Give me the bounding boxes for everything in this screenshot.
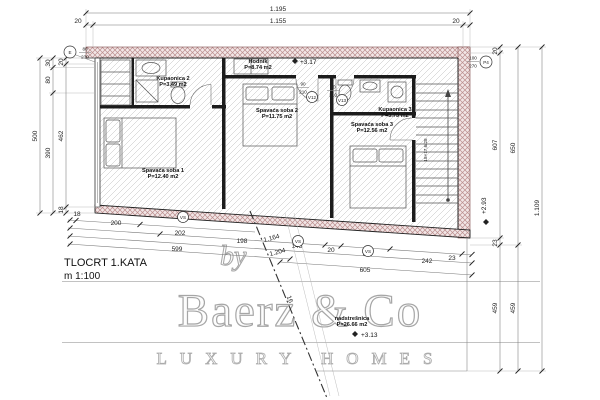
window-tag-top: 100 (469, 56, 477, 61)
dim-label: 1.164 (263, 233, 281, 244)
dim-label: 20 (74, 18, 82, 25)
room-area-kupaonica2: P=3.49 m2 (159, 82, 187, 88)
dim-label: 20 (327, 247, 335, 254)
dim-label: 1.155 (270, 18, 287, 25)
dim-label: 459 (492, 302, 499, 313)
dim-label: 1.109 (534, 199, 541, 216)
room-area-hodnik: P=8.74 m2 (244, 65, 272, 71)
dimension-left: 500 30 80 390 20 462 18 E 80 230 (32, 46, 100, 216)
terrace: nadstrešnica P=26.66 m2 +3.13 (316, 238, 467, 371)
room-area-spavaca2: P=11.75 m2 (262, 114, 292, 120)
door-tag-top: 90 (300, 82, 306, 87)
door-tag-bottom: 230 (81, 55, 89, 60)
door-tag-top: 80 (82, 47, 88, 52)
dimension-top: 1.195 20 1.155 20 (74, 6, 472, 47)
dim-label: 80 (45, 76, 52, 84)
door-tag-top: 90 (330, 85, 336, 90)
dim-label: 605 (360, 267, 371, 274)
level-marker-terrace-icon (352, 331, 358, 337)
dim-label: 500 (32, 130, 39, 141)
dim-label: 18 (58, 206, 65, 214)
dim-label: 1.204 (269, 247, 287, 258)
top-wall (86, 47, 470, 58)
level-marker-stairs-icon (483, 219, 489, 225)
level-terrace: +3.13 (361, 332, 378, 339)
dimension-right: 20 607 23 459 650 459 1.109 P4 100 270 +… (467, 45, 546, 374)
dim-label: 18 (73, 211, 81, 218)
dim-label: 20 (492, 47, 499, 55)
door-mark-e: E (68, 50, 71, 55)
dim-label: 390 (45, 147, 52, 158)
door-tag-bottom: 210 (329, 93, 337, 98)
dimension-bottom: 18 200 202 145 20 145 242 23 198 599 605… (68, 211, 475, 396)
level-hodnik: +3.17 (300, 59, 317, 66)
dim-label: 650 (510, 142, 517, 153)
right-wall (458, 47, 470, 238)
dim-label: 198 (237, 238, 248, 245)
dim-label: 242 (422, 258, 433, 265)
dim-label: 202 (175, 230, 186, 237)
dim-label: 607 (492, 139, 499, 150)
dim-label: 20 (58, 58, 65, 66)
vent-shaft-label: VS (365, 249, 371, 254)
room-area-kupaonica3: P=3.73 m2 (381, 113, 409, 119)
dim-label: 23 (448, 255, 456, 262)
door-mark-v12: V12 (308, 95, 317, 100)
dim-label: 30 (45, 59, 52, 67)
drawing-scale: m 1:100 (64, 271, 147, 282)
room-area-spavaca3: P=12.56 m2 (357, 128, 388, 134)
room-area-nadstresnica: P=26.66 m2 (337, 322, 368, 328)
dim-label: 599 (172, 246, 183, 253)
window-tag-bottom: 270 (469, 64, 477, 69)
vent-shaft-label: VS (180, 215, 186, 220)
room-area-spavaca1: P=12.40 m2 (148, 174, 179, 180)
dim-label: 459 (510, 302, 517, 313)
floor-plan-page: by Baerz & Co LUXURY HOMES (0, 0, 600, 400)
section-line: 16 (250, 211, 327, 398)
dim-label: 200 (111, 220, 122, 227)
door-tag-bottom: 210 (299, 90, 307, 95)
stair-note: 18×17,6/28 (423, 138, 428, 162)
level-stairs: +2.93 (481, 197, 488, 214)
title-block: TLOCRT 1.KATA m 1:100 (64, 257, 147, 282)
vent-shaft-label: VS (295, 239, 301, 244)
drawing-title: TLOCRT 1.KATA (64, 257, 147, 269)
dim-label: 1.195 (270, 6, 287, 13)
dim-label: 23 (492, 239, 499, 247)
window-mark-p: P4 (483, 60, 489, 65)
dim-label: 20 (452, 18, 460, 25)
dim-label: 462 (58, 130, 65, 141)
floor-plan-drawing: 18×17,6/28 Hodnik P=8.74 m2 +3.17 Kupaon… (0, 0, 600, 400)
door-mark-v13: V13 (338, 98, 347, 103)
section-label: 16 (285, 295, 294, 305)
